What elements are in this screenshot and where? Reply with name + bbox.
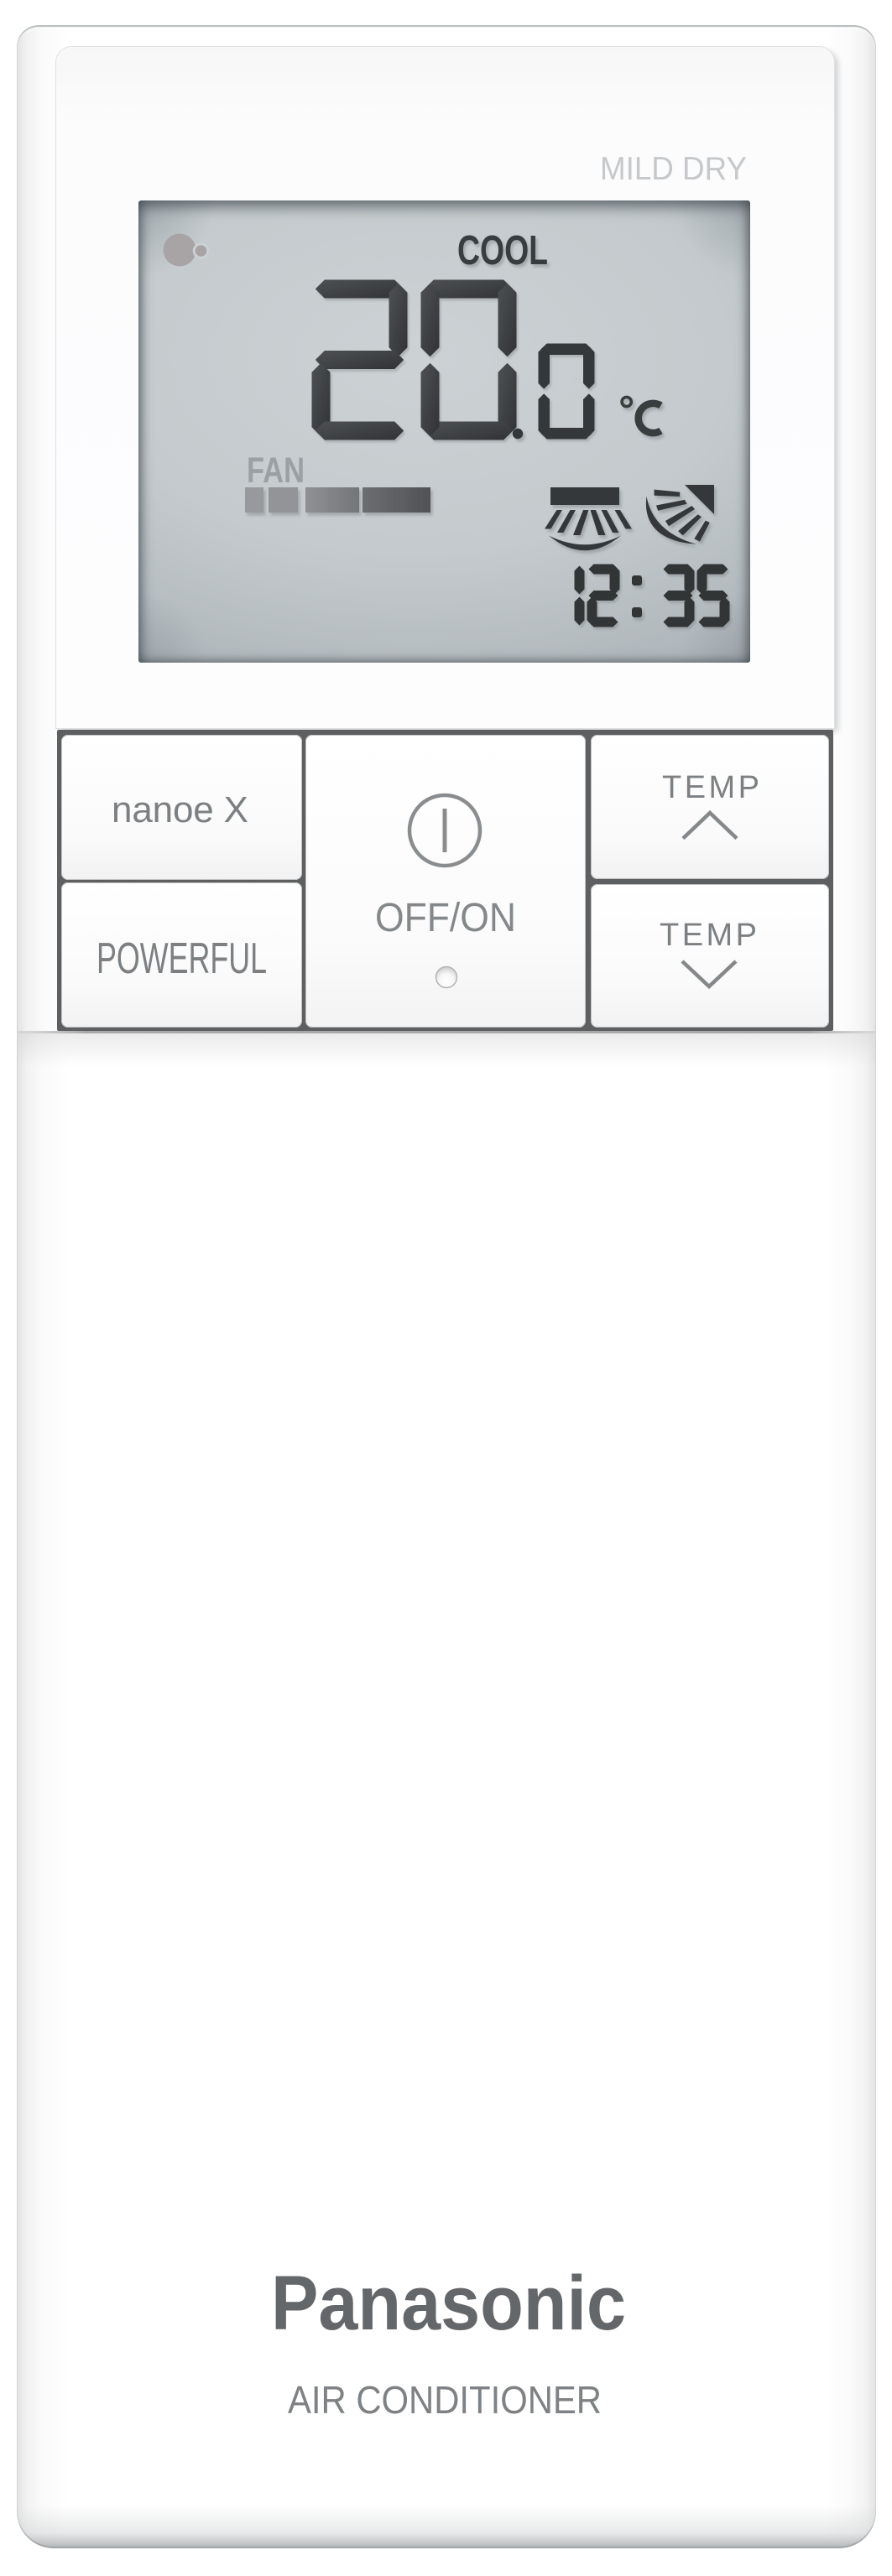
svg-text:AIR CONDITIONER: AIR CONDITIONER xyxy=(288,2378,602,2422)
svg-text:Panasonic: Panasonic xyxy=(271,2261,626,2346)
